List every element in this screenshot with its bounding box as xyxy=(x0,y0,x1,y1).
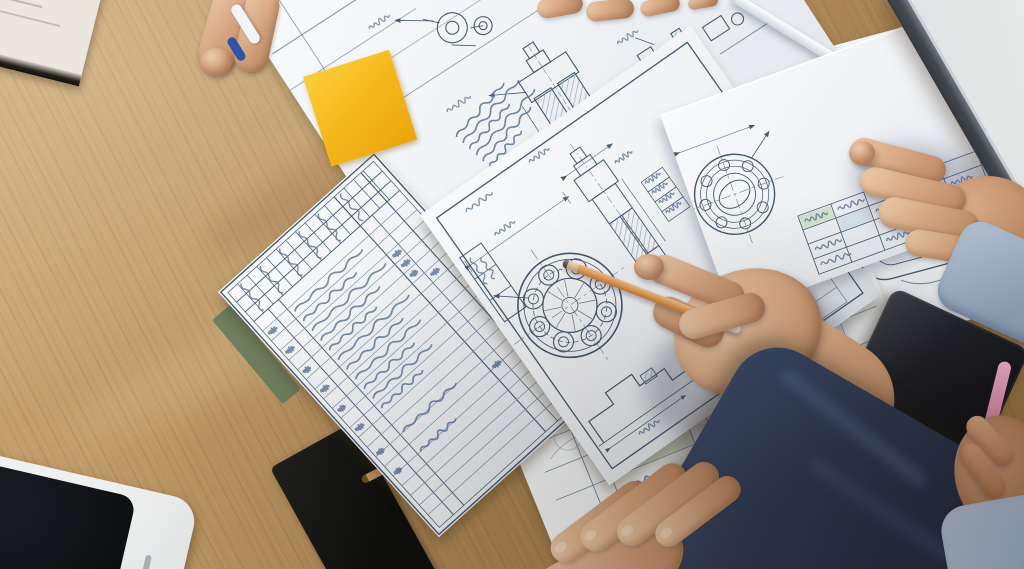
book-page-edge xyxy=(0,39,82,87)
pen-hand-fingertip xyxy=(200,48,232,76)
fingernail xyxy=(553,540,569,555)
fingernail xyxy=(619,523,635,538)
wooden-desk xyxy=(0,0,1024,569)
pencil-hand-index-fingertip xyxy=(634,254,664,280)
phone-speaker xyxy=(139,555,152,569)
sheet-hand-fingertip xyxy=(849,141,875,165)
fingernail xyxy=(583,528,599,543)
fingernail xyxy=(658,526,674,541)
book-text-line xyxy=(0,0,42,8)
book-text-line xyxy=(0,3,60,27)
phone-screen xyxy=(0,458,137,569)
white-book xyxy=(0,0,107,86)
white-smartphone xyxy=(0,446,199,569)
